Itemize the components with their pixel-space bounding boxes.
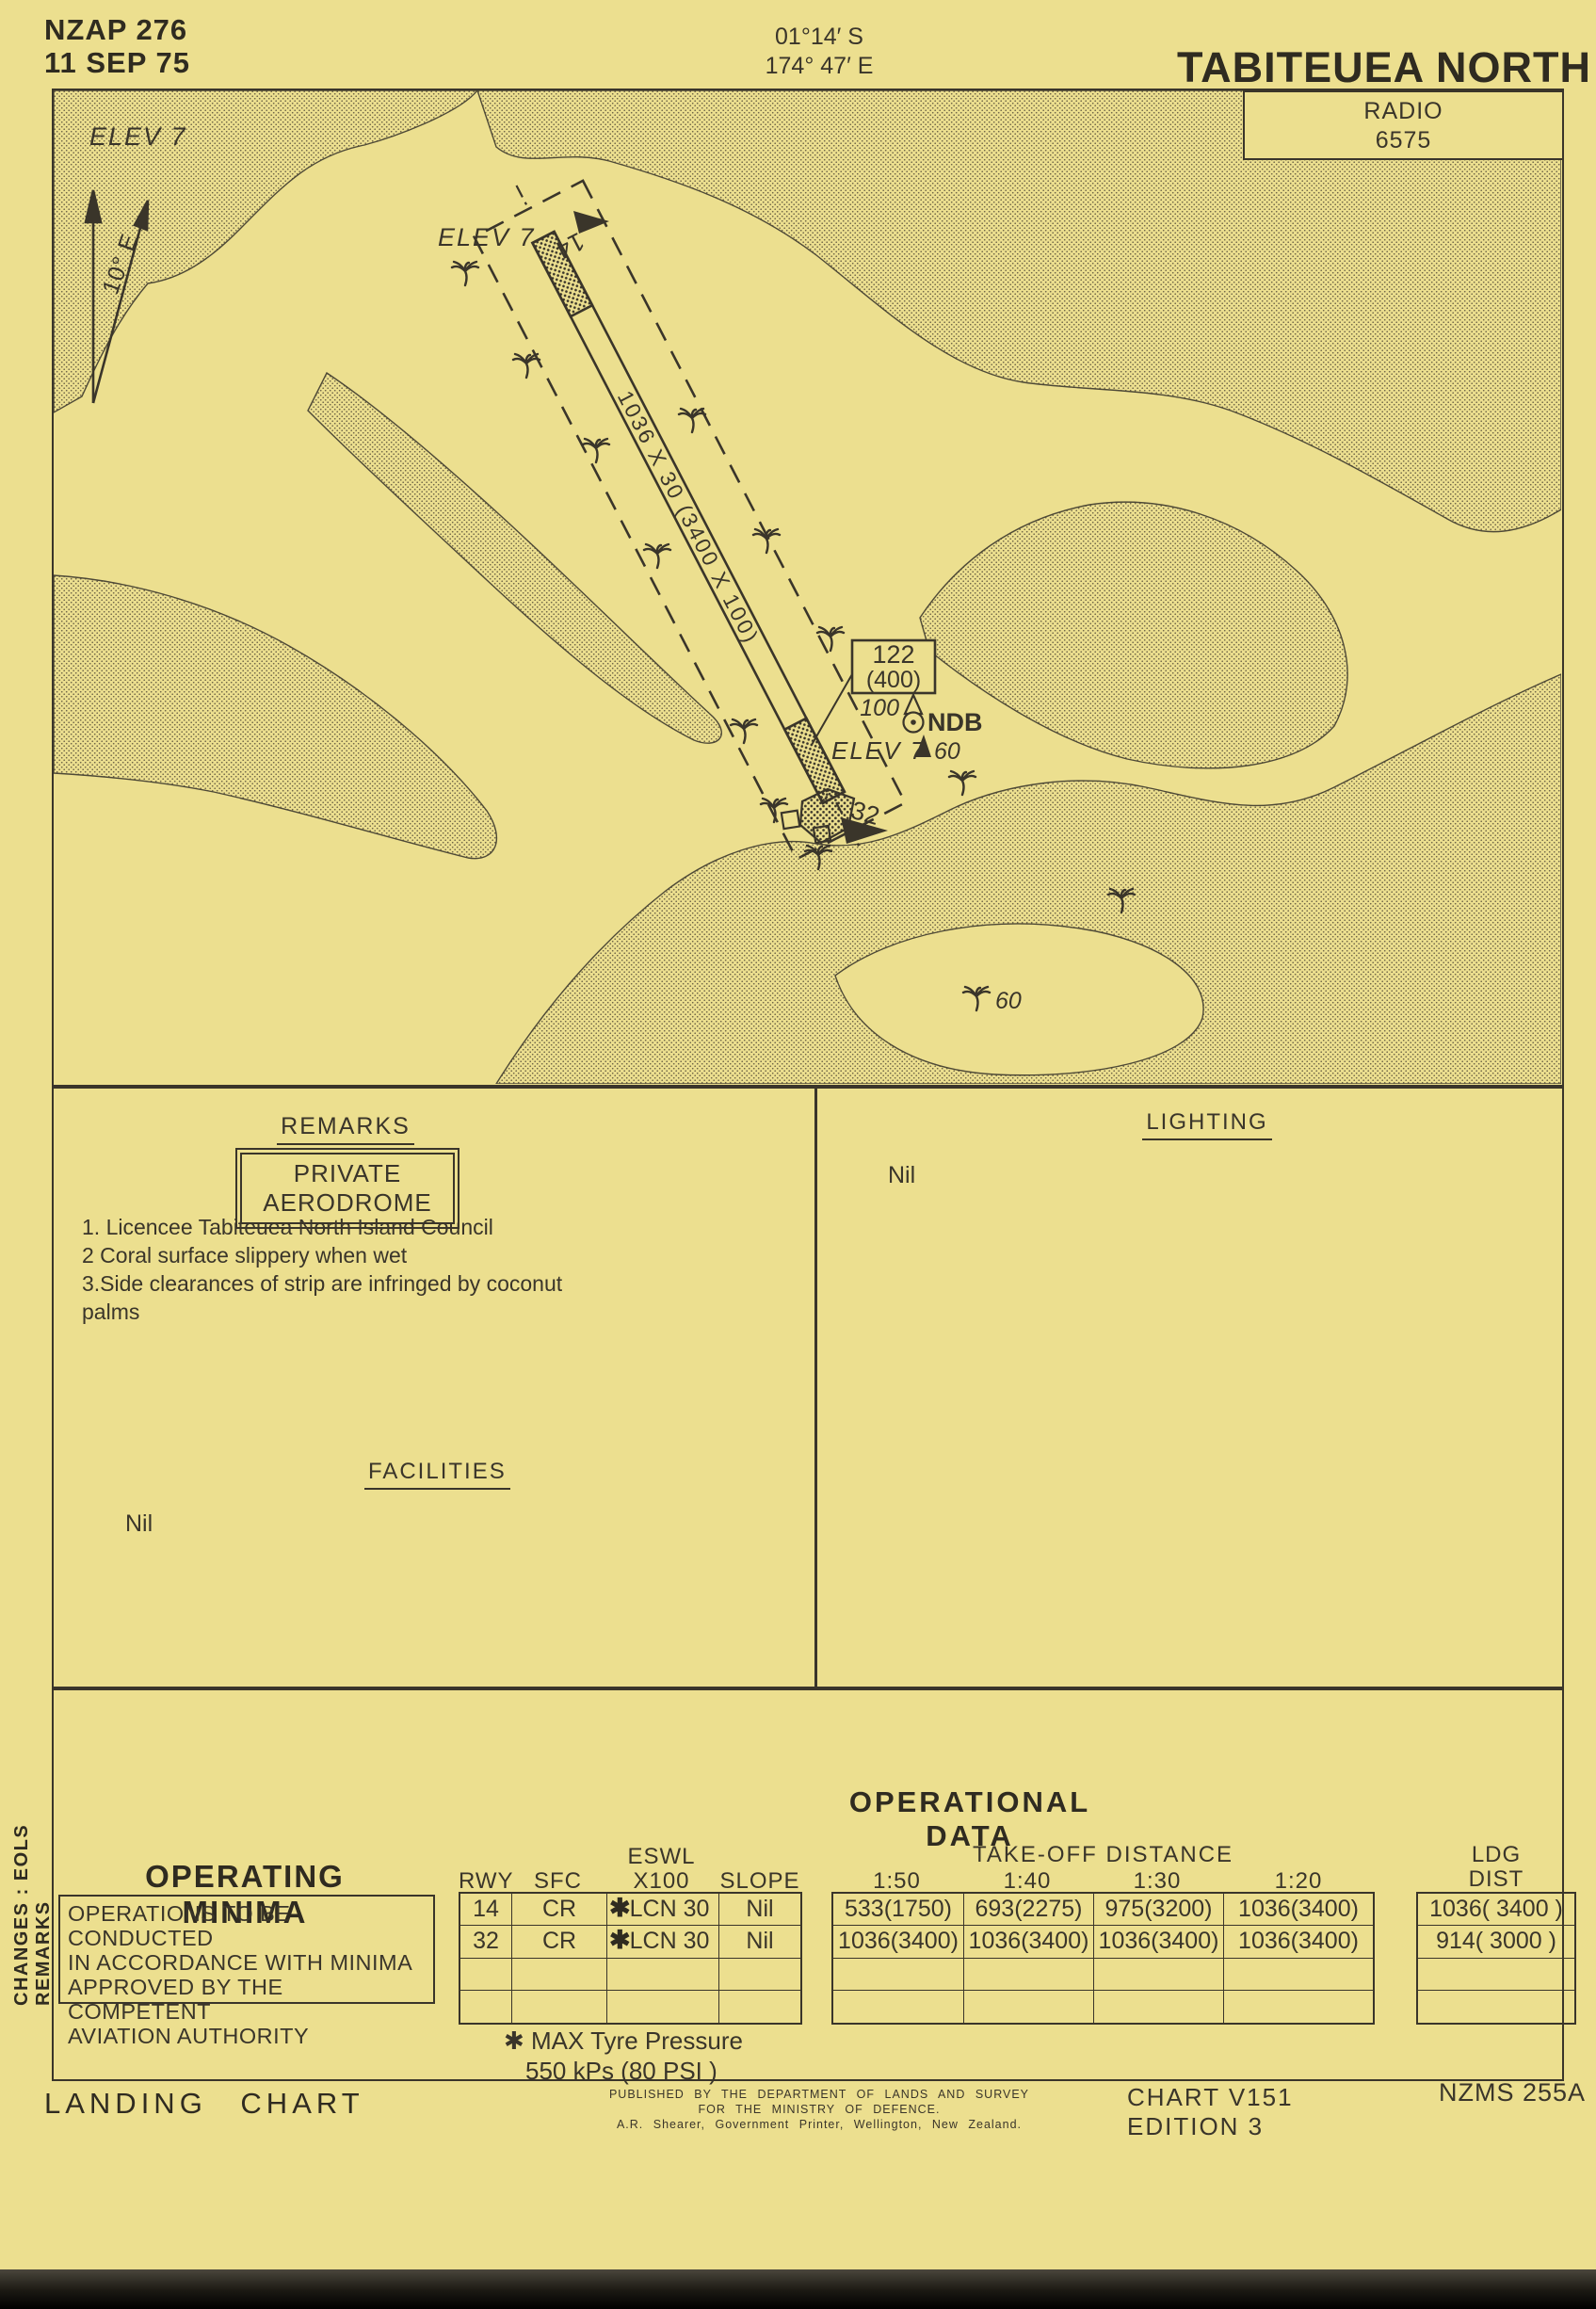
col-header-ldg-1: LDG — [1416, 1842, 1576, 1868]
cell-eswl-14: ✱LCN 30 — [607, 1894, 719, 1926]
radio-label: RADIO — [1245, 98, 1562, 125]
chart-number: CHART V151 — [1127, 2083, 1294, 2112]
empty-cell — [1224, 1959, 1373, 1991]
empty-cell — [607, 1991, 719, 2023]
minima-line-2: IN ACCORDANCE WITH MINIMA — [68, 1950, 426, 1975]
empty-cell — [833, 1991, 964, 2023]
operating-minima-box: OPERATIONS TO BE CONDUCTED IN ACCORDANCE… — [58, 1895, 435, 2004]
minima-line-4: AVIATION AUTHORITY — [68, 2024, 426, 2048]
cell-rwy-14: 14 — [460, 1894, 512, 1926]
facilities-heading: FACILITIES — [364, 1459, 506, 1490]
cell-ldg-14: 1036( 3400 ) — [1418, 1894, 1574, 1926]
empty-cell — [719, 1959, 800, 1991]
takeoff-distance-table: 533(1750) 693(2275) 975(3200) 1036(3400)… — [831, 1892, 1375, 2025]
max-tyre-asterisk: ✱ — [609, 1894, 631, 1923]
lighting-heading: LIGHTING — [1127, 1109, 1287, 1140]
col-header-rwy: RWY — [459, 1868, 510, 1895]
col-header-takeoff: TAKE-OFF DISTANCE — [831, 1842, 1375, 1868]
remarks-heading: REMARKS — [242, 1113, 449, 1145]
publisher-imprint: PUBLISHED BY THE DEPARTMENT OF LANDS AND… — [574, 2087, 1064, 2132]
remarks-list: 1. Licencee Tabiteuea North Island Counc… — [82, 1213, 609, 1326]
landing-chart-page: NZAP 276 11 SEP 75 01°14′ S 174° 47′ E T… — [0, 0, 1596, 2309]
empty-cell — [460, 1991, 512, 2023]
cell-eswl-32: ✱LCN 30 — [607, 1926, 719, 1958]
col-header-eswl-2: X100 — [605, 1868, 717, 1895]
col-header-slope: SLOPE — [717, 1868, 802, 1895]
document-type-label: LANDING CHART — [44, 2087, 364, 2121]
tree-height-south: 60 — [995, 988, 1022, 1014]
cell-32-1-50: 1036(3400) — [833, 1926, 964, 1958]
obstacle-elevation-ft: 122 — [872, 640, 914, 669]
chart-reference: NZAP 276 11 SEP 75 — [44, 13, 190, 79]
cell-14-1-30: 975(3200) — [1094, 1894, 1224, 1926]
remark-item-3: 3.Side clearances of strip are infringed… — [82, 1269, 609, 1326]
col-header-1-30: 1:30 — [1092, 1868, 1222, 1895]
empty-cell — [512, 1959, 607, 1991]
landing-distance-table: 1036( 3400 ) 914( 3000 ) — [1416, 1892, 1576, 2025]
cell-14-1-20: 1036(3400) — [1224, 1894, 1373, 1926]
chart-edition: EDITION 3 — [1127, 2112, 1264, 2141]
photo-edge-band — [0, 2269, 1596, 2309]
col-header-sfc: SFC — [510, 1868, 605, 1895]
publisher-line-3: A.R. Shearer, Government Printer, Wellin… — [574, 2117, 1064, 2132]
cell-slope-14: Nil — [719, 1894, 800, 1926]
cell-sfc-32: CR — [512, 1926, 607, 1958]
building — [782, 811, 799, 829]
col-header-eswl-1: ESWL — [605, 1844, 717, 1870]
cell-32-1-40: 1036(3400) — [964, 1926, 1094, 1958]
col-header-1-20: 1:20 — [1222, 1868, 1375, 1895]
cell-32-1-30: 1036(3400) — [1094, 1926, 1224, 1958]
ndb-height: 100 — [860, 695, 899, 721]
col-header-ldg-2: DIST — [1416, 1866, 1576, 1893]
empty-cell — [1094, 1991, 1224, 2023]
ndb-symbol — [904, 695, 924, 733]
tree-height: 60 — [934, 738, 960, 765]
empty-cell — [607, 1959, 719, 1991]
threshold-elevation-label: ELEV 7 — [438, 223, 536, 251]
approach-arrow-north — [573, 211, 609, 234]
cell-14-1-40: 693(2275) — [964, 1894, 1094, 1926]
ndb-site-elevation: ELEV 7 — [831, 736, 926, 765]
remark-item-1: 1. Licencee Tabiteuea North Island Counc… — [82, 1213, 609, 1241]
empty-cell — [719, 1991, 800, 2023]
col-header-1-40: 1:40 — [962, 1868, 1092, 1895]
radio-frequency: 6575 — [1245, 127, 1562, 154]
runway-dimensions-label: 1036 X 30 (3400 X 100) — [613, 387, 765, 649]
column-divider — [814, 1089, 817, 1687]
radio-box: RADIO 6575 — [1243, 90, 1564, 160]
aerodrome-coordinates: 01°14′ S 174° 47′ E — [716, 23, 923, 81]
cell-slope-32: Nil — [719, 1926, 800, 1958]
series-reference: NZMS 255A — [1439, 2078, 1586, 2107]
cell-32-1-20: 1036(3400) — [1224, 1926, 1373, 1958]
obstacle-elevation-alt: (400) — [866, 667, 921, 693]
longitude: 174° 47′ E — [716, 52, 923, 81]
empty-cell — [1418, 1959, 1574, 1991]
changes-sidebar-label: CHANGES : EOLS REMARKS — [11, 1742, 55, 2006]
empty-cell — [1094, 1959, 1224, 1991]
col-header-1-50: 1:50 — [831, 1868, 962, 1895]
sea-left-wedge — [54, 575, 496, 859]
empty-cell — [1224, 1991, 1373, 2023]
minima-line-1: OPERATIONS TO BE CONDUCTED — [68, 1901, 426, 1950]
chart-date: 11 SEP 75 — [44, 46, 190, 79]
aerodrome-map: 10° E ELEV 7 1036 X 30 (3400 X 100) 14 3… — [54, 90, 1561, 1084]
ndb-label: NDB — [927, 708, 983, 736]
empty-cell — [512, 1991, 607, 2023]
sea-areas — [54, 90, 1561, 1084]
centerline-extension-north — [516, 186, 528, 209]
publisher-line-1: PUBLISHED BY THE DEPARTMENT OF LANDS AND… — [574, 2087, 1064, 2102]
chart-ref-number: NZAP 276 — [44, 13, 190, 46]
latitude: 01°14′ S — [716, 23, 923, 52]
runway-data-table: 14 CR ✱LCN 30 Nil 32 CR ✱LCN 30 Nil — [459, 1892, 802, 2025]
remarks-section: REMARKS PRIVATE AERODROME 1. Licencee Ta… — [52, 1087, 1564, 1688]
empty-cell — [1418, 1991, 1574, 2023]
aerodrome-elevation-label: ELEV 7 — [89, 122, 187, 151]
cell-sfc-14: CR — [512, 1894, 607, 1926]
page-title: TABITEUEA NORTH — [942, 43, 1591, 92]
publisher-line-2: FOR THE MINISTRY OF DEFENCE. — [574, 2102, 1064, 2117]
empty-cell — [964, 1959, 1094, 1991]
cell-ldg-32: 914( 3000 ) — [1418, 1926, 1574, 1958]
tyre-pressure-value: 550 kPs (80 PSI ) — [525, 2057, 717, 2086]
empty-cell — [833, 1959, 964, 1991]
minima-line-3: APPROVED BY THE COMPETENT — [68, 1975, 426, 2024]
tyre-pressure-note: ✱ MAX Tyre Pressure — [504, 2026, 743, 2056]
facilities-value: Nil — [125, 1510, 153, 1538]
lagoon-inlet — [920, 502, 1347, 768]
max-tyre-asterisk: ✱ — [609, 1926, 631, 1955]
lighting-value: Nil — [888, 1162, 915, 1189]
obstacle-leader-line — [812, 674, 852, 745]
cell-14-1-50: 533(1750) — [833, 1894, 964, 1926]
cell-rwy-32: 32 — [460, 1926, 512, 1958]
remark-item-2: 2 Coral surface slippery when wet — [82, 1241, 609, 1269]
map-frame: 10° E ELEV 7 1036 X 30 (3400 X 100) 14 3… — [52, 89, 1564, 1087]
empty-cell — [964, 1991, 1094, 2023]
empty-cell — [460, 1959, 512, 1991]
